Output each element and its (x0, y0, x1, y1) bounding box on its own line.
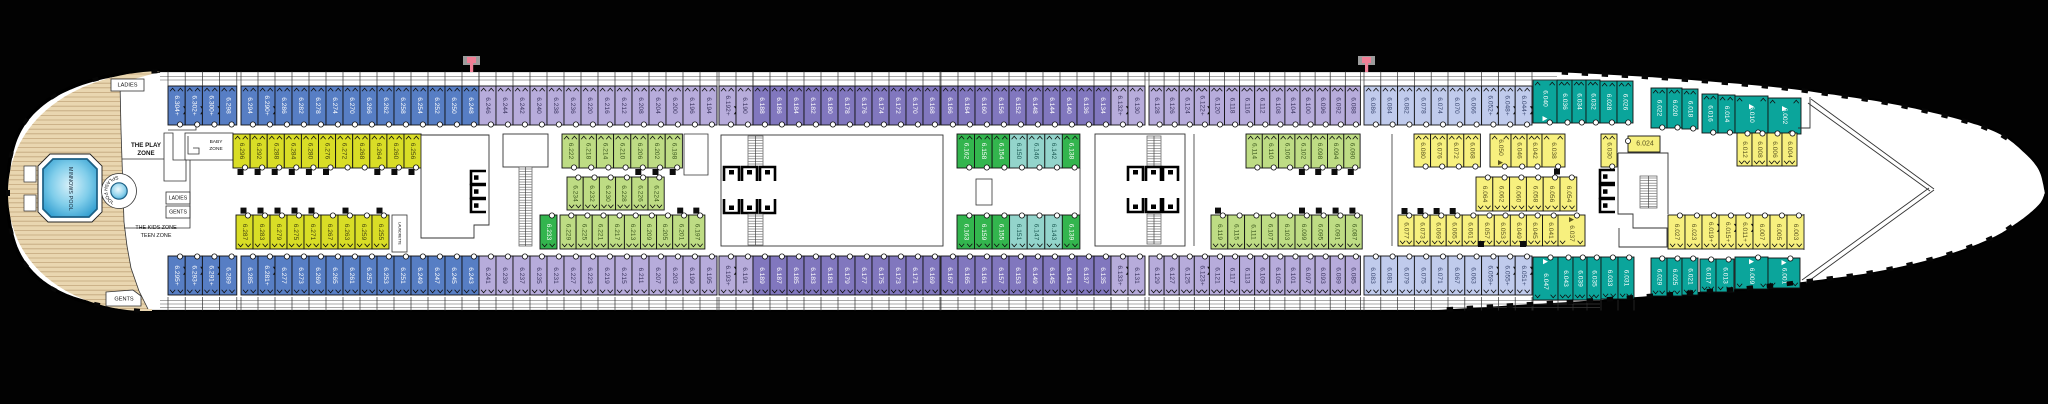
svg-text:6.175: 6.175 (877, 267, 884, 284)
svg-text:6.045: 6.045 (1531, 222, 1538, 239)
svg-text:6.249: 6.249 (416, 267, 423, 284)
svg-text:6.256: 6.256 (409, 143, 416, 160)
svg-text:6.302+: 6.302+ (190, 95, 197, 116)
svg-text:6.161: 6.161 (980, 267, 987, 284)
svg-text:6.080: 6.080 (1419, 142, 1426, 159)
svg-text:6.233: 6.233 (545, 224, 552, 241)
svg-text:6.031: 6.031 (1623, 270, 1630, 287)
svg-text:6.038: 6.038 (1550, 142, 1557, 159)
svg-text:6.009: 6.009 (1748, 268, 1755, 285)
svg-text:6.029: 6.029 (1656, 269, 1663, 286)
svg-text:6.028: 6.028 (1605, 94, 1612, 111)
svg-text:6.001: 6.001 (1781, 268, 1788, 285)
svg-text:6.079: 6.079 (1403, 267, 1410, 284)
svg-text:6.060: 6.060 (1515, 186, 1522, 203)
svg-text:6.142: 6.142 (1050, 143, 1057, 160)
svg-text:6.184: 6.184 (792, 97, 799, 114)
svg-text:6.259: 6.259 (360, 224, 367, 241)
svg-text:6.032: 6.032 (1590, 93, 1597, 110)
svg-text:6.208: 6.208 (637, 97, 644, 114)
svg-text:6.261: 6.261 (348, 267, 355, 284)
svg-text:6.133+: 6.133+ (1116, 265, 1123, 286)
svg-text:6.037: 6.037 (1568, 225, 1575, 242)
svg-text:6.084: 6.084 (1386, 97, 1393, 114)
svg-text:6.234: 6.234 (572, 185, 579, 202)
svg-text:6.198: 6.198 (670, 143, 677, 160)
svg-text:6.166: 6.166 (946, 97, 953, 114)
svg-text:6.238: 6.238 (552, 97, 559, 114)
svg-text:6.076: 6.076 (1435, 142, 1442, 159)
svg-text:6.230: 6.230 (604, 185, 611, 202)
svg-text:6.188: 6.188 (758, 97, 765, 114)
svg-text:6.235: 6.235 (535, 267, 542, 284)
svg-text:6.094: 6.094 (1332, 143, 1339, 160)
svg-text:6.072: 6.072 (1452, 142, 1459, 159)
svg-text:6.035: 6.035 (1591, 270, 1598, 287)
svg-text:6.057: 6.057 (1483, 222, 1490, 239)
svg-text:6.244: 6.244 (501, 97, 508, 114)
svg-text:6.284: 6.284 (289, 143, 296, 160)
svg-text:6.293+: 6.293+ (190, 265, 197, 286)
svg-text:6.103: 6.103 (1283, 224, 1290, 241)
svg-text:6.054: 6.054 (1565, 186, 1572, 203)
svg-text:6.292: 6.292 (255, 143, 262, 160)
svg-text:6.255: 6.255 (377, 224, 384, 241)
svg-text:6.270: 6.270 (348, 97, 355, 114)
svg-text:6.040: 6.040 (1542, 90, 1549, 107)
svg-text:6.160: 6.160 (980, 97, 987, 114)
svg-text:6.039: 6.039 (1577, 270, 1584, 287)
svg-text:6.014: 6.014 (1723, 106, 1730, 123)
svg-text:6.042: 6.042 (1531, 142, 1538, 159)
svg-text:6.282: 6.282 (297, 97, 304, 114)
svg-text:6.158: 6.158 (980, 143, 987, 160)
svg-text:6.136: 6.136 (1082, 97, 1089, 114)
svg-text:6.182: 6.182 (809, 97, 816, 114)
svg-text:6.167: 6.167 (946, 267, 953, 284)
svg-text:6.064: 6.064 (1481, 186, 1488, 203)
svg-text:6.034: 6.034 (1576, 93, 1583, 110)
svg-text:6.134: 6.134 (1099, 97, 1106, 114)
svg-text:6.112: 6.112 (1259, 97, 1266, 113)
svg-text:6.073: 6.073 (1419, 222, 1426, 239)
svg-text:6.231: 6.231 (552, 267, 559, 284)
svg-text:6.008: 6.008 (1756, 141, 1763, 158)
svg-text:6.243: 6.243 (467, 267, 474, 284)
svg-text:6.098: 6.098 (1316, 143, 1323, 160)
svg-text:6.228: 6.228 (620, 185, 627, 202)
svg-text:6.146: 6.146 (1033, 143, 1040, 160)
svg-text:6.102: 6.102 (1300, 143, 1307, 160)
svg-text:6.108: 6.108 (1274, 97, 1281, 114)
svg-text:6.183: 6.183 (809, 267, 816, 284)
svg-text:6.247: 6.247 (433, 267, 440, 284)
svg-text:6.242: 6.242 (518, 97, 525, 114)
svg-text:6.239: 6.239 (501, 267, 508, 284)
svg-text:6.141: 6.141 (1065, 267, 1072, 284)
svg-text:6.020: 6.020 (1671, 100, 1678, 117)
svg-text:6.281+: 6.281+ (263, 265, 270, 286)
svg-text:6.048+: 6.048+ (1503, 95, 1510, 116)
svg-text:6.149: 6.149 (1031, 267, 1038, 284)
svg-text:6.276: 6.276 (324, 143, 331, 160)
svg-text:6.078: 6.078 (1419, 97, 1426, 114)
svg-text:6.100: 6.100 (1304, 97, 1311, 114)
svg-text:6.191: 6.191 (741, 267, 748, 284)
svg-text:6.254: 6.254 (416, 97, 423, 114)
svg-text:6.164: 6.164 (963, 97, 970, 114)
svg-text:6.199: 6.199 (688, 267, 695, 284)
svg-text:6.241: 6.241 (484, 267, 491, 284)
svg-text:6.214: 6.214 (602, 143, 609, 160)
svg-text:6.111: 6.111 (1250, 224, 1257, 240)
svg-text:TEEN ZONE: TEEN ZONE (141, 233, 172, 239)
svg-text:6.052+: 6.052+ (1487, 95, 1494, 116)
svg-text:6.286: 6.286 (280, 97, 287, 114)
svg-text:6.097: 6.097 (1304, 267, 1311, 284)
svg-text:6.264: 6.264 (375, 143, 382, 160)
svg-text:6.190: 6.190 (741, 97, 748, 114)
svg-text:6.277: 6.277 (280, 267, 287, 284)
svg-text:6.236: 6.236 (569, 97, 576, 114)
svg-text:6.257: 6.257 (365, 267, 372, 284)
svg-text:6.088: 6.088 (1349, 97, 1356, 114)
svg-text:6.050: 6.050 (1497, 139, 1504, 156)
svg-text:GENTS: GENTS (114, 297, 134, 303)
svg-text:6.157: 6.157 (997, 267, 1004, 284)
svg-text:6.148: 6.148 (1031, 97, 1038, 114)
svg-text:ZONE: ZONE (209, 146, 222, 152)
svg-text:6.219: 6.219 (603, 267, 610, 284)
svg-text:6.018: 6.018 (1687, 101, 1694, 118)
svg-text:6.044+: 6.044+ (1520, 95, 1527, 116)
svg-text:6.091: 6.091 (1334, 224, 1341, 241)
svg-text:6.030: 6.030 (1606, 142, 1613, 159)
svg-text:6.229: 6.229 (565, 224, 572, 241)
svg-text:6.205: 6.205 (661, 224, 668, 241)
svg-text:6.163: 6.163 (962, 224, 969, 241)
svg-text:6.093: 6.093 (1319, 267, 1326, 284)
svg-text:6.197: 6.197 (693, 224, 700, 241)
svg-text:6.155: 6.155 (997, 224, 1004, 241)
svg-text:6.147: 6.147 (1033, 224, 1040, 241)
svg-text:6.177: 6.177 (860, 267, 867, 284)
svg-text:ZONE: ZONE (137, 150, 154, 157)
svg-text:6.071: 6.071 (1436, 267, 1443, 284)
svg-text:6.174: 6.174 (877, 97, 884, 114)
svg-text:6.252: 6.252 (433, 97, 440, 114)
svg-text:6.232: 6.232 (588, 185, 595, 202)
svg-text:6.059+: 6.059+ (1487, 265, 1494, 286)
svg-text:6.221: 6.221 (597, 224, 604, 241)
svg-text:6.263: 6.263 (343, 224, 350, 241)
svg-text:6.115: 6.115 (1233, 224, 1240, 240)
svg-text:6.024: 6.024 (1636, 141, 1654, 148)
svg-text:6.043: 6.043 (1562, 270, 1569, 287)
svg-text:6.248: 6.248 (467, 97, 474, 114)
svg-text:6.089: 6.089 (1334, 267, 1341, 284)
svg-text:6.041: 6.041 (1547, 222, 1554, 239)
svg-text:6.180: 6.180 (826, 97, 833, 114)
svg-text:6.127: 6.127 (1168, 267, 1175, 284)
svg-text:6.253: 6.253 (382, 267, 389, 284)
svg-text:6.013: 6.013 (1722, 267, 1729, 284)
svg-text:6.047: 6.047 (1542, 273, 1549, 290)
svg-text:6.074: 6.074 (1436, 97, 1443, 114)
svg-text:6.186: 6.186 (775, 97, 782, 114)
svg-text:6.275: 6.275 (292, 224, 299, 241)
svg-text:6.114: 6.114 (1251, 143, 1258, 159)
svg-text:6.096: 6.096 (1319, 97, 1326, 114)
svg-text:6.226: 6.226 (636, 185, 643, 202)
svg-text:6.288: 6.288 (272, 143, 279, 160)
svg-text:6.117: 6.117 (1229, 267, 1236, 283)
svg-text:6.145: 6.145 (1048, 267, 1055, 284)
svg-text:6.220: 6.220 (586, 97, 593, 114)
svg-text:6.171: 6.171 (911, 267, 918, 284)
svg-text:LADIES: LADIES (169, 196, 188, 202)
svg-text:6.007: 6.007 (1758, 224, 1765, 241)
svg-text:6.210: 6.210 (619, 143, 626, 160)
svg-text:6.222: 6.222 (567, 143, 574, 160)
svg-text:LADIES: LADIES (118, 83, 138, 89)
svg-text:6.106: 6.106 (1283, 143, 1290, 160)
svg-text:6.178: 6.178 (843, 97, 850, 114)
svg-text:6.046: 6.046 (1516, 142, 1523, 159)
svg-text:6.176: 6.176 (860, 97, 867, 114)
svg-text:6.144: 6.144 (1048, 97, 1055, 114)
svg-text:6.202: 6.202 (653, 143, 660, 160)
svg-text:6.125: 6.125 (1183, 267, 1190, 284)
svg-text:6.116: 6.116 (1244, 97, 1251, 113)
svg-text:6.245: 6.245 (450, 267, 457, 284)
svg-text:6.135: 6.135 (1099, 267, 1106, 284)
svg-text:6.156: 6.156 (997, 97, 1004, 114)
svg-text:6.187: 6.187 (775, 267, 782, 284)
svg-text:6.138: 6.138 (1068, 143, 1075, 160)
svg-text:6.132+: 6.132+ (1116, 95, 1123, 116)
svg-text:6.070: 6.070 (1453, 97, 1460, 114)
svg-text:6.203: 6.203 (671, 267, 678, 284)
svg-text:6.294: 6.294 (246, 97, 253, 114)
svg-text:6.118: 6.118 (1229, 97, 1236, 113)
svg-text:6.061: 6.061 (1467, 222, 1474, 239)
svg-text:6.151: 6.151 (1015, 224, 1022, 241)
svg-text:6.121: 6.121 (1214, 267, 1221, 284)
svg-text:6.223: 6.223 (586, 267, 593, 284)
svg-text:6.066: 6.066 (1470, 97, 1477, 114)
svg-text:6.170: 6.170 (911, 97, 918, 114)
svg-text:6.069: 6.069 (1435, 222, 1442, 239)
svg-text:6.237: 6.237 (518, 267, 525, 284)
svg-text:6.092: 6.092 (1334, 97, 1341, 114)
svg-text:6.296: 6.296 (238, 143, 245, 160)
svg-text:6.085: 6.085 (1349, 267, 1356, 284)
svg-text:6.131: 6.131 (1133, 267, 1140, 284)
svg-text:6.017: 6.017 (1705, 267, 1712, 284)
svg-text:6.012: 6.012 (1741, 141, 1748, 158)
svg-text:6.113: 6.113 (1244, 267, 1251, 283)
svg-text:6.194: 6.194 (705, 97, 712, 114)
svg-text:6.153: 6.153 (1014, 267, 1021, 284)
svg-text:6.265: 6.265 (331, 267, 338, 284)
svg-text:6.215: 6.215 (620, 267, 627, 284)
svg-text:6.058: 6.058 (1531, 186, 1538, 203)
svg-text:6.271: 6.271 (309, 224, 316, 241)
svg-text:6.168: 6.168 (928, 97, 935, 114)
svg-text:6.033: 6.033 (1606, 270, 1613, 287)
svg-text:6.212: 6.212 (620, 97, 627, 114)
svg-text:6.251: 6.251 (399, 267, 406, 284)
svg-text:6.027: 6.027 (1673, 224, 1680, 241)
svg-text:6.246: 6.246 (484, 97, 491, 114)
svg-text:6.273: 6.273 (297, 267, 304, 284)
svg-text:6.150: 6.150 (1015, 143, 1022, 160)
svg-text:6.169: 6.169 (928, 267, 935, 284)
svg-text:6.216: 6.216 (603, 97, 610, 114)
svg-text:6.143: 6.143 (1050, 224, 1057, 241)
svg-text:6.298: 6.298 (225, 97, 232, 114)
svg-text:6.099: 6.099 (1300, 224, 1307, 241)
svg-text:6.217: 6.217 (613, 224, 620, 241)
svg-text:6.201: 6.201 (677, 224, 684, 241)
svg-text:6.019+: 6.019+ (1707, 222, 1714, 243)
svg-text:6.110: 6.110 (1267, 143, 1274, 159)
svg-text:6.022: 6.022 (1656, 100, 1663, 117)
svg-text:6.124: 6.124 (1183, 97, 1190, 114)
svg-text:6.090: 6.090 (1349, 143, 1356, 160)
svg-text:6.289: 6.289 (225, 267, 232, 284)
svg-text:6.026: 6.026 (1622, 94, 1629, 111)
svg-text:6.211: 6.211 (637, 267, 644, 283)
svg-text:6.055+: 6.055+ (1503, 265, 1510, 286)
svg-text:6.015+: 6.015+ (1724, 222, 1731, 243)
svg-text:6.123+: 6.123+ (1198, 265, 1205, 286)
svg-text:6.300+: 6.300+ (208, 95, 215, 116)
svg-text:6.051+: 6.051+ (1520, 265, 1527, 286)
svg-text:6.304+: 6.304+ (173, 95, 180, 116)
svg-text:6.130: 6.130 (1133, 97, 1140, 114)
svg-text:6.122+: 6.122+ (1198, 95, 1205, 116)
svg-text:6.179: 6.179 (843, 267, 850, 284)
svg-text:6.209: 6.209 (645, 224, 652, 241)
svg-text:6.049: 6.049 (1515, 222, 1522, 239)
svg-text:6.165: 6.165 (963, 267, 970, 284)
svg-text:6.218: 6.218 (584, 143, 591, 160)
svg-text:6.081: 6.081 (1386, 267, 1393, 284)
svg-text:6.213: 6.213 (629, 224, 636, 241)
svg-text:6.036: 6.036 (1561, 93, 1568, 110)
svg-text:6.172: 6.172 (894, 97, 901, 114)
svg-text:6.065: 6.065 (1451, 222, 1458, 239)
svg-text:THE PLAY: THE PLAY (131, 142, 162, 149)
svg-text:6.290+: 6.290+ (263, 95, 270, 116)
svg-text:6.016: 6.016 (1707, 105, 1714, 122)
svg-text:6.025: 6.025 (1671, 269, 1678, 286)
svg-text:GENTS: GENTS (169, 210, 187, 216)
svg-text:6.279: 6.279 (275, 224, 282, 241)
svg-text:6.207: 6.207 (654, 267, 661, 284)
svg-text:6.021: 6.021 (1687, 268, 1694, 285)
svg-text:6.105: 6.105 (1274, 267, 1281, 284)
svg-text:6.126: 6.126 (1168, 97, 1175, 114)
svg-text:6.004: 6.004 (1786, 141, 1793, 158)
svg-text:6.266: 6.266 (365, 97, 372, 114)
svg-text:6.272: 6.272 (341, 143, 348, 160)
svg-text:6.225: 6.225 (581, 224, 588, 241)
svg-text:6.005: 6.005 (1775, 224, 1782, 241)
svg-text:6.267: 6.267 (326, 224, 333, 241)
svg-text:6.195: 6.195 (705, 267, 712, 284)
svg-text:6.268: 6.268 (358, 143, 365, 160)
svg-text:6.063: 6.063 (1470, 267, 1477, 284)
svg-text:6.278: 6.278 (314, 97, 321, 114)
svg-text:LAUNDRETTE: LAUNDRETTE (398, 222, 402, 245)
svg-text:MINNOWS POOL: MINNOWS POOL (67, 167, 73, 211)
svg-text:6.023: 6.023 (1690, 224, 1697, 241)
svg-text:6.068: 6.068 (1469, 142, 1476, 159)
svg-text:6.162: 6.162 (962, 143, 969, 160)
svg-text:6.154: 6.154 (997, 143, 1004, 160)
svg-text:6.104: 6.104 (1289, 97, 1296, 114)
svg-text:6.285: 6.285 (246, 267, 253, 284)
svg-text:6.193+: 6.193+ (724, 265, 731, 286)
svg-text:6.291+: 6.291+ (208, 265, 215, 286)
svg-text:6.189: 6.189 (758, 267, 765, 284)
svg-text:6.280: 6.280 (306, 143, 313, 160)
svg-text:6.056: 6.056 (1548, 186, 1555, 203)
svg-text:6.185: 6.185 (792, 267, 799, 284)
svg-text:6.137: 6.137 (1082, 267, 1089, 284)
svg-text:6.011+: 6.011+ (1741, 222, 1748, 242)
svg-text:6.206: 6.206 (636, 143, 643, 160)
svg-text:6.159: 6.159 (980, 224, 987, 241)
svg-text:6.224: 6.224 (653, 185, 660, 202)
svg-text:6.204: 6.204 (654, 97, 661, 114)
svg-text:6.240: 6.240 (535, 97, 542, 114)
svg-text:6.139: 6.139 (1068, 224, 1075, 241)
svg-text:6.258: 6.258 (399, 97, 406, 114)
svg-text:6.075: 6.075 (1419, 267, 1426, 284)
svg-text:6.196: 6.196 (688, 97, 695, 114)
svg-text:6.077: 6.077 (1403, 222, 1410, 239)
svg-text:6.152: 6.152 (1014, 97, 1021, 114)
svg-text:6.053: 6.053 (1499, 222, 1506, 239)
svg-text:6.107: 6.107 (1266, 224, 1273, 241)
svg-text:6.087: 6.087 (1350, 224, 1357, 241)
svg-text:6.227: 6.227 (569, 267, 576, 284)
svg-text:6.140: 6.140 (1065, 97, 1072, 114)
svg-text:BABY: BABY (210, 139, 224, 145)
svg-text:6.269: 6.269 (314, 267, 321, 284)
svg-text:6.283: 6.283 (258, 224, 265, 241)
svg-text:6.260: 6.260 (392, 143, 399, 160)
svg-text:6.250: 6.250 (450, 97, 457, 114)
svg-text:6.274: 6.274 (331, 97, 338, 114)
svg-text:6.095: 6.095 (1317, 224, 1324, 241)
svg-text:6.287: 6.287 (241, 224, 248, 241)
svg-text:6.181: 6.181 (826, 267, 833, 284)
svg-text:6.129: 6.129 (1153, 267, 1160, 284)
svg-text:6.173: 6.173 (894, 267, 901, 284)
svg-text:6.062: 6.062 (1498, 186, 1505, 203)
svg-text:6.200: 6.200 (671, 97, 678, 114)
svg-text:6.120: 6.120 (1214, 97, 1221, 114)
svg-text:6.006: 6.006 (1771, 141, 1778, 158)
svg-text:6.295+: 6.295+ (173, 265, 180, 286)
svg-text:6.086: 6.086 (1369, 97, 1376, 114)
svg-text:6.067: 6.067 (1453, 267, 1460, 284)
